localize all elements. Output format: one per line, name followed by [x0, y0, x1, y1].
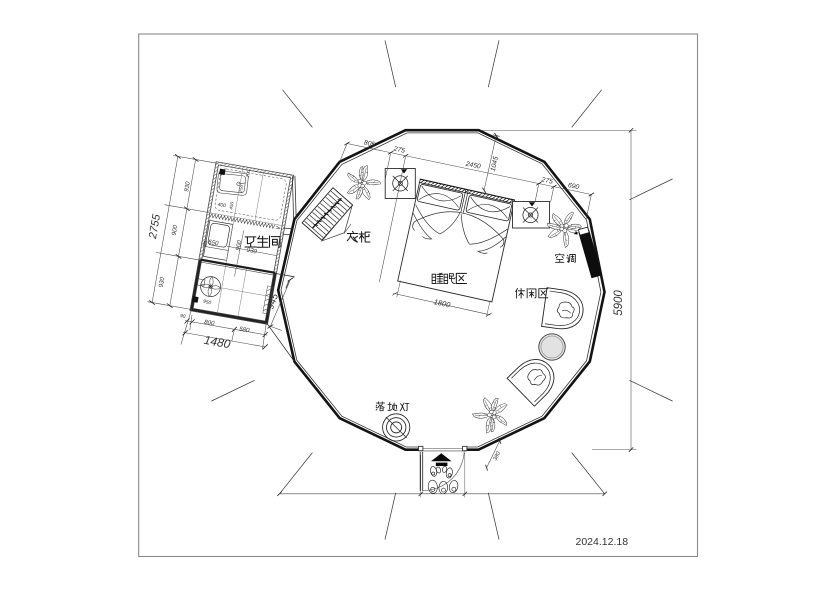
svg-text:2024.12.18: 2024.12.18: [576, 536, 629, 548]
svg-text:5900: 5900: [613, 290, 625, 316]
